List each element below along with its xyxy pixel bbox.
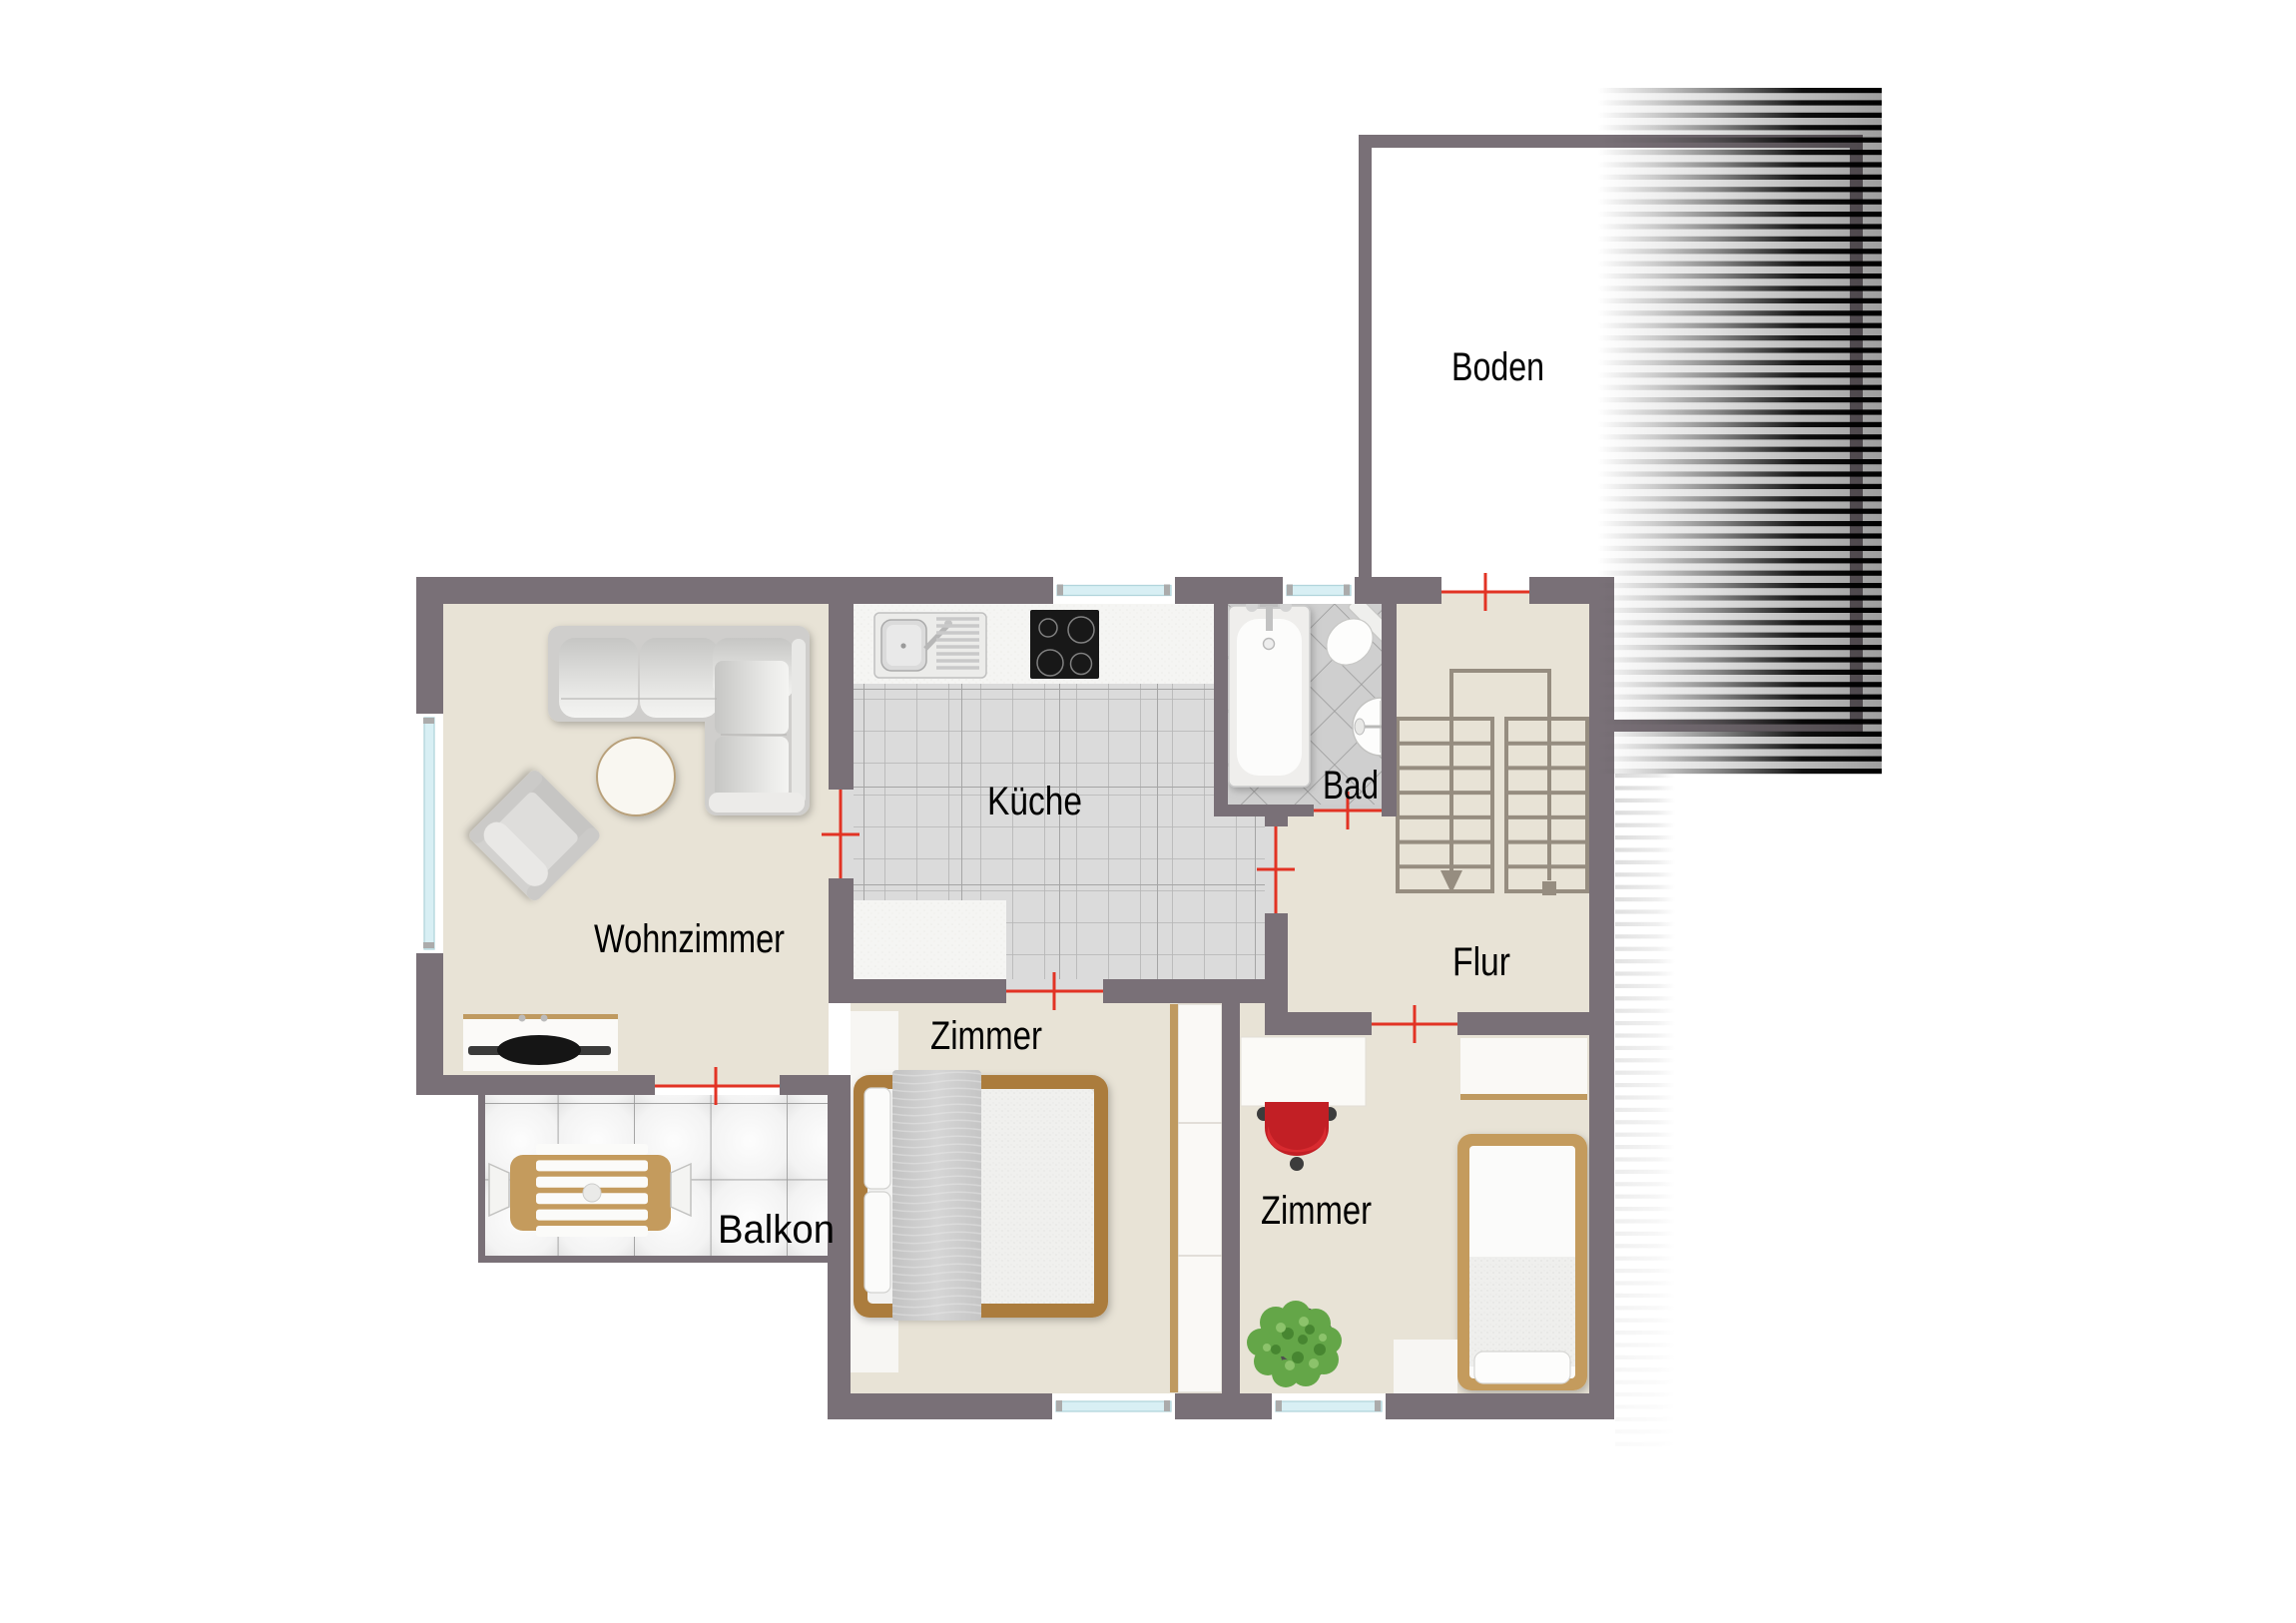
svg-text:Balkon: Balkon: [718, 1208, 835, 1252]
svg-text:Bad: Bad: [1323, 764, 1379, 808]
svg-text:Boden: Boden: [1451, 345, 1544, 389]
svg-text:Zimmer: Zimmer: [930, 1014, 1042, 1058]
svg-text:Zimmer: Zimmer: [1261, 1189, 1372, 1233]
svg-text:Flur: Flur: [1452, 940, 1510, 984]
svg-text:Küche: Küche: [987, 780, 1082, 823]
svg-text:Wohnzimmer: Wohnzimmer: [594, 917, 785, 961]
